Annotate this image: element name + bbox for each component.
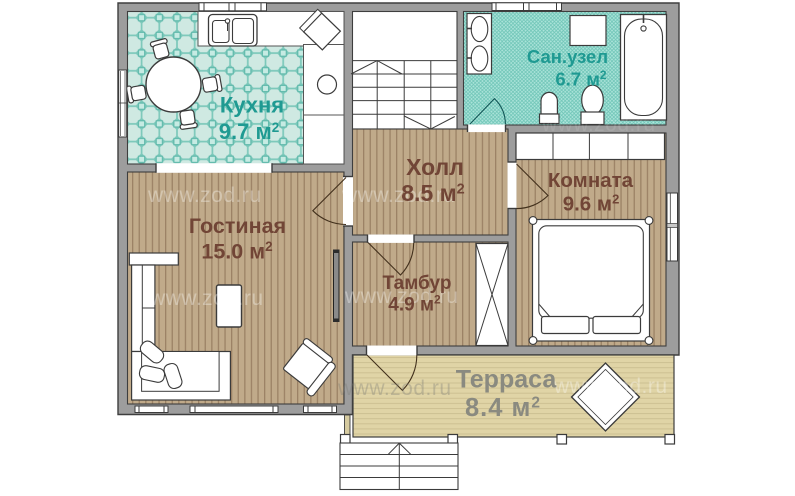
svg-text:Гостиная: Гостиная bbox=[189, 214, 286, 238]
svg-text:6.7 м2: 6.7 м2 bbox=[555, 68, 607, 90]
svg-text:www.zod.ru: www.zod.ru bbox=[149, 287, 264, 310]
svg-text:4.9 м2: 4.9 м2 bbox=[388, 293, 441, 316]
svg-text:8.4 м2: 8.4 м2 bbox=[465, 394, 541, 422]
svg-text:Комната: Комната bbox=[548, 169, 634, 192]
svg-text:9.7 м2: 9.7 м2 bbox=[219, 119, 280, 144]
svg-text:Терраса: Терраса bbox=[456, 366, 558, 394]
svg-text:www.zod.ru: www.zod.ru bbox=[541, 113, 656, 136]
svg-text:Кухня: Кухня bbox=[220, 93, 284, 118]
svg-text:9.6 м2: 9.6 м2 bbox=[563, 192, 620, 216]
svg-text:15.0 м2: 15.0 м2 bbox=[201, 239, 272, 264]
svg-text:8.5 м2: 8.5 м2 bbox=[401, 180, 464, 206]
svg-text:Тамбур: Тамбур bbox=[383, 273, 452, 294]
svg-text:www.zod.ru: www.zod.ru bbox=[553, 375, 668, 398]
svg-text:www.zod.ru: www.zod.ru bbox=[147, 184, 262, 207]
svg-text:Холл: Холл bbox=[406, 154, 464, 180]
svg-text:Сан.узел: Сан.узел bbox=[527, 46, 608, 67]
svg-text:www.zod.ru: www.zod.ru bbox=[337, 377, 452, 400]
